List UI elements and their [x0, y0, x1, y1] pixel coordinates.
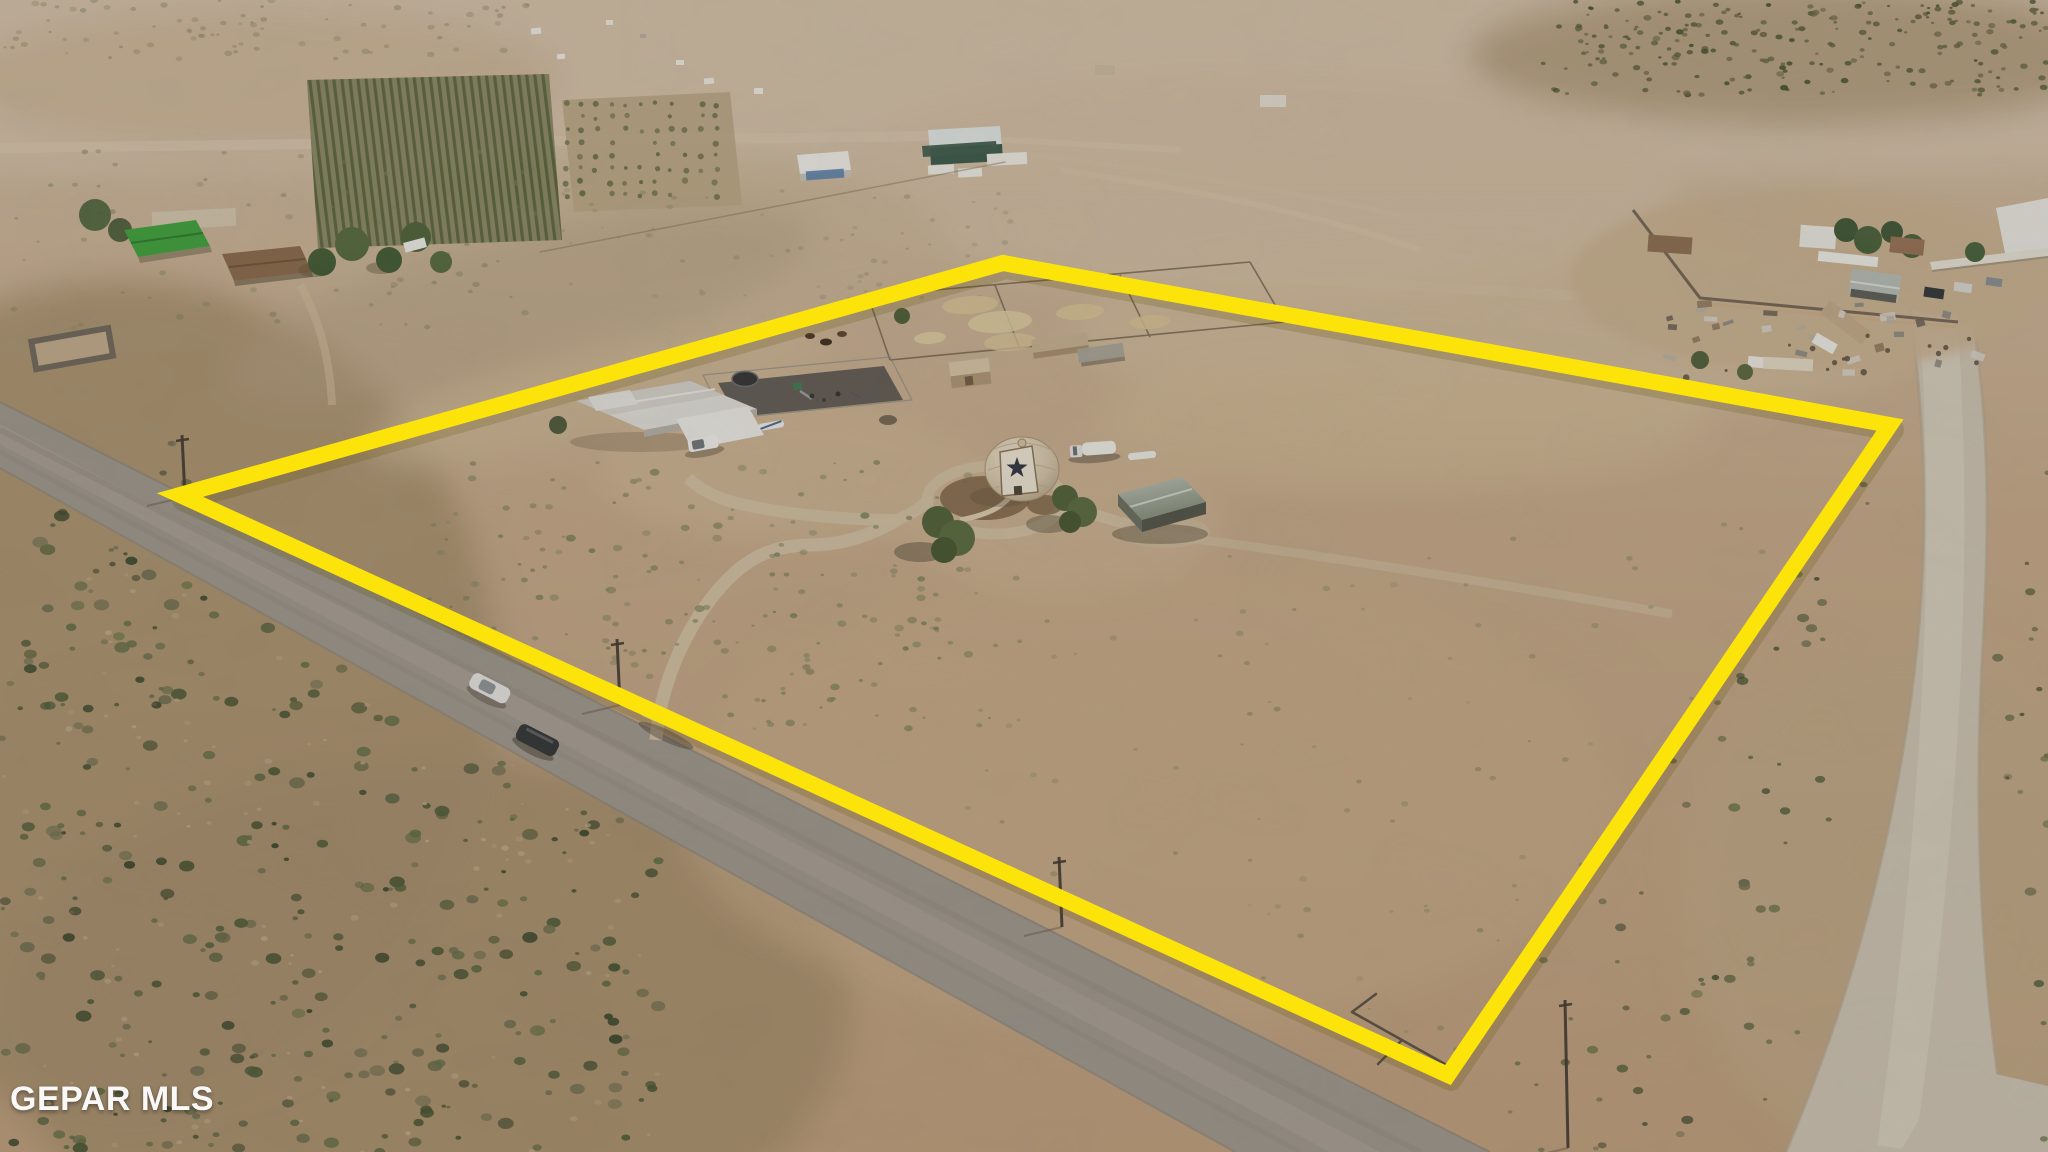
mls-watermark: GEPAR MLS	[10, 1082, 214, 1116]
aerial-scene	[0, 0, 2048, 1152]
photo-grain	[0, 0, 2048, 1152]
listing-photo: GEPAR MLS	[0, 0, 2048, 1152]
